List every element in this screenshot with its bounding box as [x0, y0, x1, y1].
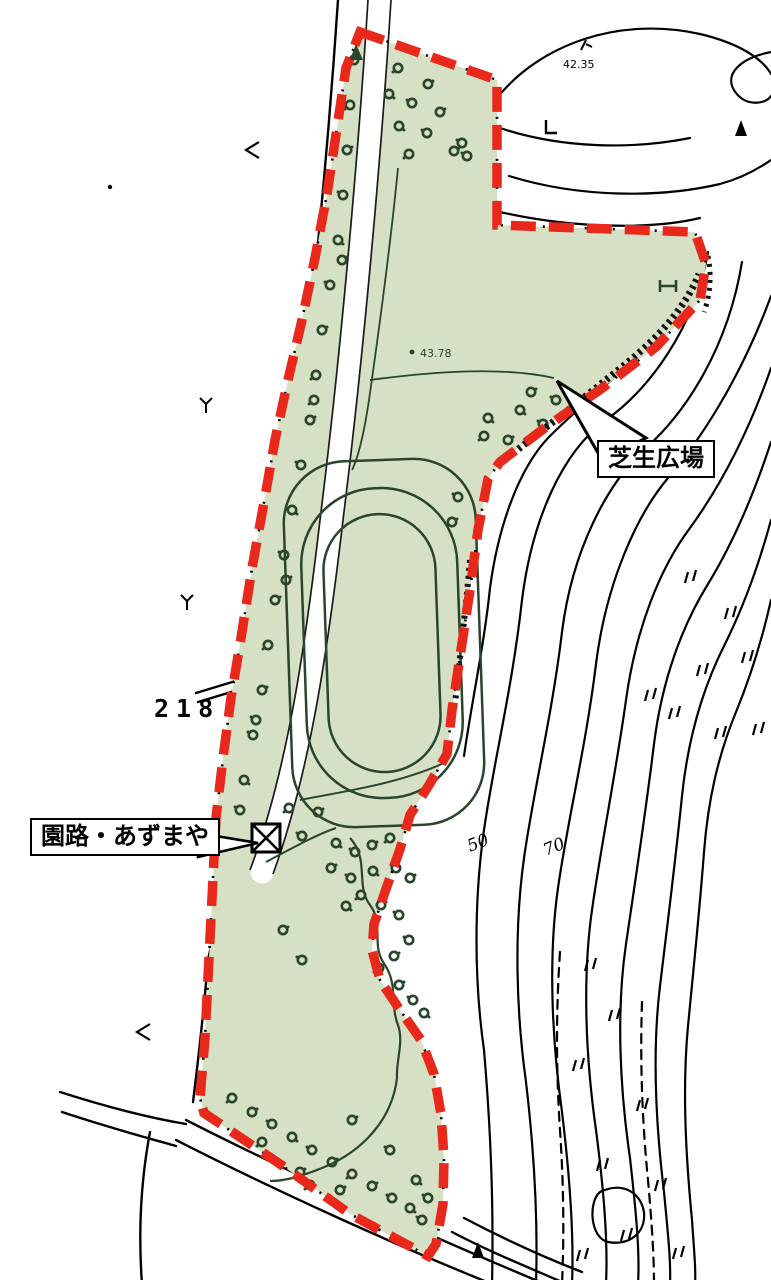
gazebo-symbol	[252, 824, 280, 852]
tree-icon	[406, 874, 414, 882]
path-gazebo-label: 園路・あずまや	[30, 818, 220, 856]
tree-icon	[324, 281, 327, 284]
tree-icon	[444, 108, 447, 111]
field-double-tick-icon	[673, 1246, 684, 1259]
tree-icon	[395, 911, 403, 919]
tree-icon	[550, 396, 553, 399]
tree-icon	[296, 956, 299, 959]
spot-elevation-top: 42.35	[563, 58, 595, 71]
tree-icon	[326, 326, 329, 329]
tree-icon	[405, 936, 413, 944]
tree-icon	[421, 129, 424, 132]
tree-icon	[250, 716, 253, 719]
tree-icon	[344, 1186, 347, 1189]
tree-icon	[456, 139, 459, 142]
tree-icon	[376, 1182, 379, 1185]
benchmark-triangle-icon	[472, 1242, 484, 1258]
path-gazebo-label-text: 園路・あずまや	[41, 823, 209, 850]
tree-icon	[384, 841, 387, 844]
tree-icon	[392, 71, 395, 74]
tree-icon	[234, 806, 237, 809]
tree-icon	[308, 403, 311, 406]
tree-icon	[314, 416, 317, 419]
tree-icon	[403, 981, 406, 984]
tree-icon	[403, 129, 406, 132]
tree-icon	[287, 926, 290, 929]
tree-icon	[414, 1211, 417, 1214]
tree-icon	[390, 952, 398, 960]
hill-contour	[497, 29, 771, 98]
tree-icon	[377, 874, 380, 877]
field-double-tick-icon	[697, 663, 708, 676]
tree-icon	[256, 1108, 259, 1111]
field-double-tick-icon	[577, 1248, 588, 1261]
tree-icon	[266, 686, 269, 689]
park-polygon	[200, 32, 706, 1256]
tree-icon	[403, 157, 406, 160]
tree-icon	[406, 99, 409, 102]
tree-icon	[537, 420, 540, 423]
tree-icon	[279, 596, 282, 599]
field-double-tick-icon	[753, 722, 764, 735]
tree-icon	[290, 576, 293, 579]
tree-icon	[296, 832, 299, 835]
tree-icon	[349, 848, 352, 851]
tree-icon	[355, 898, 358, 901]
tree-icon	[535, 388, 538, 391]
map-drawing: 42.35 43.78 50 70	[0, 0, 771, 1280]
tree-icon	[342, 243, 345, 246]
dot-mark-icon	[108, 185, 112, 189]
tree-icon	[428, 1016, 431, 1019]
tree-icon	[420, 1009, 428, 1017]
tree-icon	[256, 1145, 259, 1148]
contour-label-50: 50	[464, 830, 492, 857]
tree-icon	[422, 1194, 425, 1197]
spot-elevation-dot	[410, 350, 415, 355]
contour-lines	[464, 29, 771, 1280]
tree-icon	[322, 808, 325, 811]
tree-icon	[346, 256, 349, 259]
tree-icon	[226, 1101, 229, 1104]
hill-contour	[500, 128, 690, 145]
hill-loop-contour	[731, 52, 771, 103]
tree-icon	[395, 981, 403, 989]
contour	[620, 442, 771, 1280]
junction-road	[62, 1112, 176, 1146]
tree-icon	[336, 1158, 339, 1161]
road-number-label: 218	[154, 694, 220, 723]
tree-icon	[306, 1146, 309, 1149]
tree-icon	[393, 911, 396, 914]
tree-icon	[296, 1140, 299, 1143]
contour	[656, 520, 771, 1280]
tree-icon	[340, 846, 343, 849]
tree-icon	[393, 97, 396, 100]
hill-contour	[509, 160, 771, 194]
park-plan-map: 42.35 43.78 50 70 芝生広場 園路・あずまや 218	[0, 0, 771, 1280]
tree-icon	[335, 864, 338, 867]
pole-mark-icon	[181, 595, 193, 610]
lawn-plaza-label: 芝生広場	[597, 440, 715, 478]
tree-icon	[452, 493, 455, 496]
tree-icon	[512, 436, 515, 439]
tick-mark-icon	[581, 40, 592, 50]
tree-icon	[283, 811, 286, 814]
chevron-mark-icon	[137, 1024, 150, 1040]
field-double-tick-icon	[715, 726, 726, 739]
tree-icon	[262, 648, 265, 651]
tree-icon	[384, 1146, 387, 1149]
tree-icon	[304, 1168, 307, 1171]
tree-icon	[524, 413, 527, 416]
tree-icon	[409, 996, 417, 1004]
field-double-tick-icon	[742, 650, 753, 663]
tree-icon	[295, 461, 298, 464]
tree-icon	[416, 1216, 419, 1219]
tree-icon	[420, 1183, 423, 1186]
tree-icon	[296, 513, 299, 516]
tree-icon	[456, 518, 459, 521]
chevron-mark-icon	[246, 142, 259, 158]
tree-icon	[414, 874, 417, 877]
tree-icon	[398, 952, 401, 955]
tree-icon	[350, 909, 353, 912]
contour	[685, 600, 771, 1280]
field-double-tick-icon	[685, 570, 696, 583]
park-area	[200, 32, 706, 1256]
tree-icon	[248, 783, 251, 786]
field-double-tick-icon	[725, 606, 736, 619]
tree-icon	[266, 1120, 269, 1123]
field-double-tick-icon	[669, 706, 680, 719]
field-double-tick-icon	[645, 688, 656, 701]
tree-icon	[345, 874, 348, 877]
tree-icon	[247, 731, 250, 734]
tree-icon	[376, 841, 379, 844]
field-double-tick-icon	[573, 1058, 584, 1071]
tree-icon	[356, 1116, 359, 1119]
lawn-plaza-label-text: 芝生広場	[608, 445, 704, 472]
tree-icon	[403, 936, 406, 939]
tree-icon	[278, 551, 281, 554]
tree-icon	[351, 146, 354, 149]
junction-road	[60, 1092, 186, 1124]
corner-mark-icon	[546, 120, 557, 133]
benchmark-triangle-icon	[735, 120, 747, 136]
tree-icon	[407, 996, 410, 999]
tree-icon	[432, 80, 435, 83]
pole-mark-icon	[200, 398, 212, 413]
tree-icon	[337, 191, 340, 194]
tree-icon	[492, 421, 495, 424]
tree-icon	[478, 439, 481, 442]
tree-icon	[386, 1194, 389, 1197]
tree-icon	[310, 378, 313, 381]
tree-icon	[461, 152, 464, 155]
spot-elevation-mid: 43.78	[420, 347, 452, 360]
field-double-tick-icon	[609, 1008, 620, 1021]
parcel-dashed-line	[641, 1002, 654, 1280]
junction-road	[140, 1132, 150, 1280]
tree-icon	[346, 1177, 349, 1180]
